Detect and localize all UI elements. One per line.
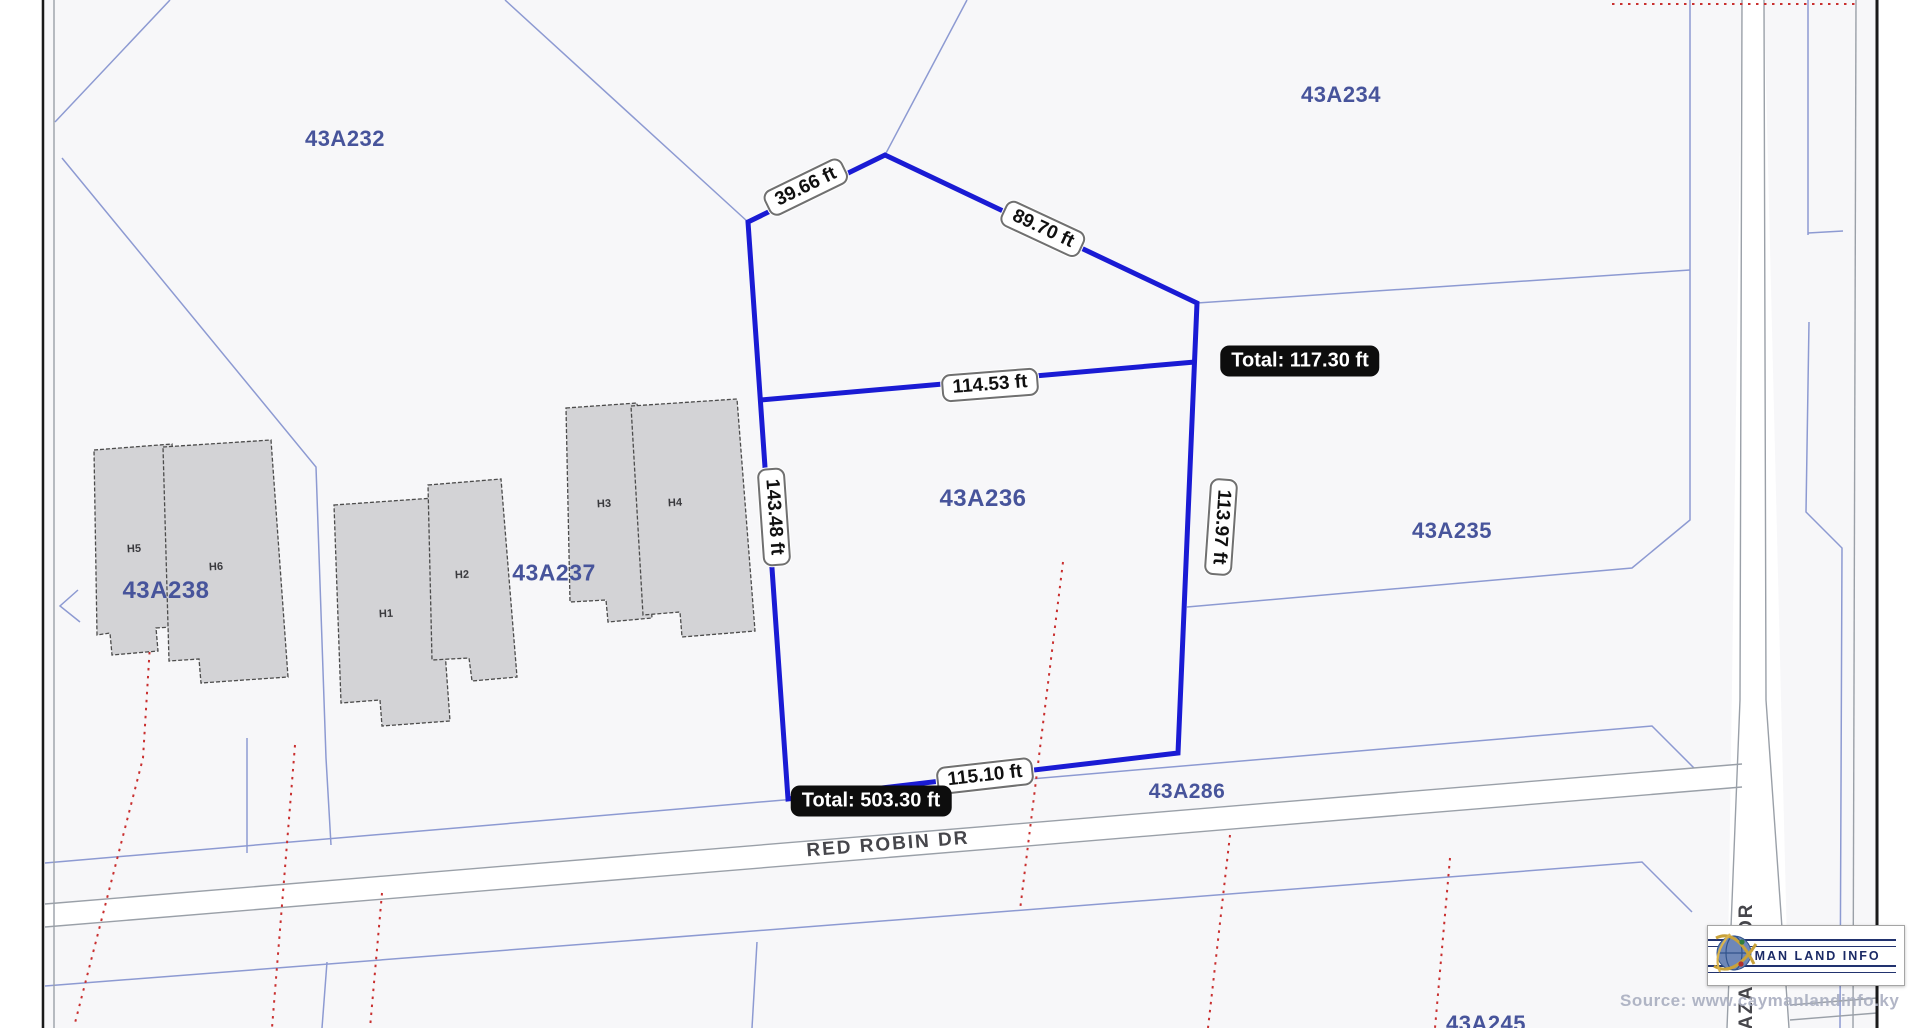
parcel-label-43A238: 43A238 xyxy=(122,577,209,605)
building-h4 xyxy=(631,399,755,637)
parcel-label-43A236: 43A236 xyxy=(939,485,1026,513)
parcel-label-43A234: 43A234 xyxy=(1301,82,1381,108)
building-label-h3: H3 xyxy=(597,498,612,511)
building-label-h1: H1 xyxy=(379,608,394,621)
parcel-label-43A286: 43A286 xyxy=(1149,780,1226,804)
measurement-total-badge-2[interactable]: Total: 503.30 ft xyxy=(791,786,952,817)
building-label-h4: H4 xyxy=(668,497,683,510)
source-watermark: Source: www.caymanlandinfo.ky xyxy=(1620,991,1899,1011)
left-margin xyxy=(0,0,41,1028)
globe-icon xyxy=(1710,926,1760,980)
building-label-h5: H5 xyxy=(127,543,142,556)
map-background xyxy=(0,0,1920,1028)
building-h2 xyxy=(428,479,517,681)
cayman-land-info-logo: CAYMAN LAND INFO xyxy=(1707,925,1905,986)
building-h6 xyxy=(163,440,288,683)
measurement-total-badge-1[interactable]: Total: 117.30 ft xyxy=(1220,346,1379,377)
right-margin xyxy=(1879,0,1920,1028)
parcel-label-43A235: 43A235 xyxy=(1412,518,1492,544)
map-canvas[interactable] xyxy=(0,0,1920,1028)
parcel-label-43A245: 43A245 xyxy=(1446,1011,1526,1028)
building-label-h2: H2 xyxy=(455,569,470,582)
parcel-label-43A237: 43A237 xyxy=(512,560,596,587)
cadastral-map-view: 43A232 43A234 43A235 43A236 43A237 43A23… xyxy=(0,0,1920,1028)
parcel-label-43A232: 43A232 xyxy=(305,126,385,152)
building-label-h6: H6 xyxy=(209,561,224,574)
